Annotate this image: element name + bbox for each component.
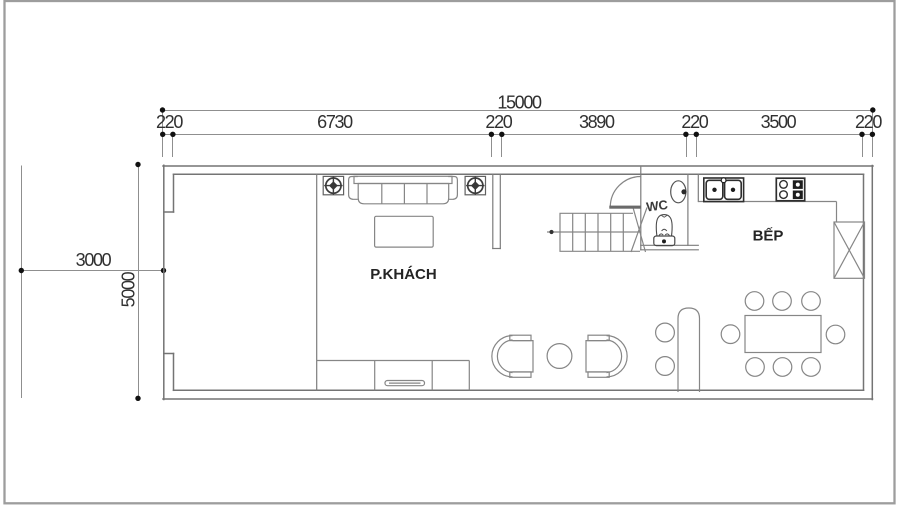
svg-text:220: 220 (485, 112, 512, 132)
svg-text:3500: 3500 (761, 112, 797, 132)
svg-text:WC: WC (645, 197, 669, 215)
svg-text:3890: 3890 (579, 112, 615, 132)
svg-text:6730: 6730 (317, 112, 353, 132)
svg-text:220: 220 (681, 112, 708, 132)
svg-text:5000: 5000 (119, 271, 139, 307)
svg-text:220: 220 (855, 112, 882, 132)
svg-text:15000: 15000 (497, 93, 542, 113)
svg-text:3000: 3000 (76, 250, 112, 270)
svg-text:220: 220 (156, 112, 183, 132)
svg-text:P.KHÁCH: P.KHÁCH (370, 266, 436, 283)
svg-text:BẾP: BẾP (753, 228, 784, 245)
